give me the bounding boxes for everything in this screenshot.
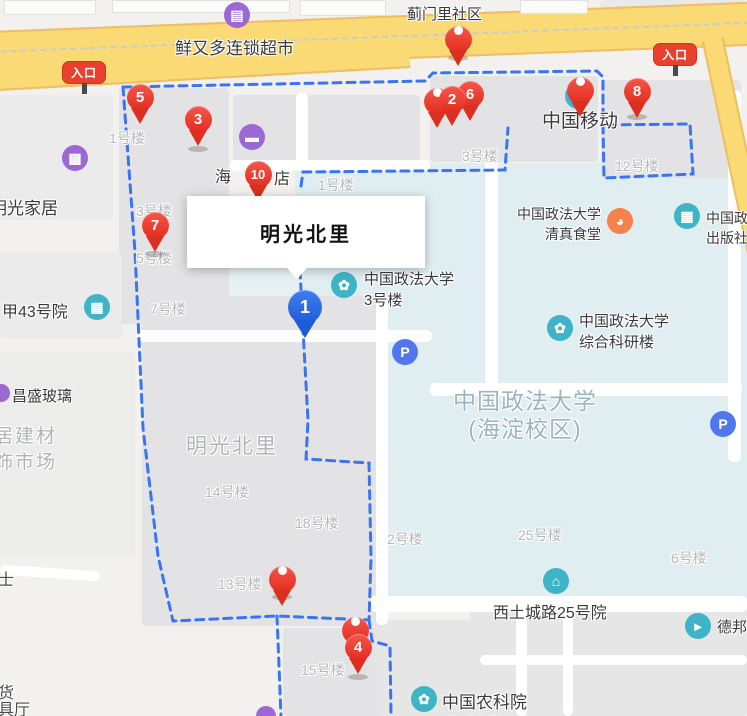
- supermarket-icon[interactable]: ▤: [224, 2, 250, 28]
- roof-block: [300, 0, 386, 16]
- roof-block: [4, 0, 96, 15]
- sprout-glyph: ✿: [418, 692, 430, 706]
- map-pin-1-selected[interactable]: 1: [288, 290, 322, 338]
- building-label-25: 25号楼: [518, 525, 562, 545]
- pin-tail: [131, 108, 149, 124]
- pin-number: 4: [345, 634, 372, 661]
- building-label-18: 18号楼: [295, 513, 339, 533]
- p-glyph: P: [400, 345, 409, 359]
- pin-head: [269, 566, 296, 593]
- label-uni-b3[interactable]: 中国政法大学 3号楼: [364, 268, 454, 310]
- building-glyph: ▦: [90, 300, 103, 314]
- label-jia43[interactable]: 甲43号院: [2, 298, 68, 322]
- label-xitucheng[interactable]: 西土城路25号院: [493, 599, 607, 623]
- building-glyph: ▦: [680, 209, 693, 223]
- cut-poi-icon: [256, 706, 276, 716]
- label-supermarket[interactable]: 鲜又多连锁超市: [175, 34, 294, 59]
- label-changsheng[interactable]: 昌盛玻璃: [12, 385, 72, 406]
- map-pin-8[interactable]: 8: [623, 78, 651, 118]
- bag-glyph: ▩: [68, 151, 81, 165]
- parking-icon-1[interactable]: P: [392, 339, 418, 365]
- roof-block: [520, 0, 588, 14]
- pin-number: 5: [127, 84, 154, 111]
- entrance-sign-east: 入口: [653, 43, 697, 66]
- label-debang[interactable]: 德邦物流: [717, 616, 747, 637]
- uni-b3-line2: 3号楼: [364, 289, 454, 310]
- parking-icon-2[interactable]: P: [710, 411, 736, 437]
- pin-number: 2: [439, 86, 466, 113]
- campus-label-line2: (海淀校区): [453, 416, 597, 444]
- label-press[interactable]: 中国政法大学 出版社: [706, 208, 747, 248]
- pin-tail: [189, 130, 207, 146]
- canteen-icon[interactable]: ◕: [607, 208, 633, 234]
- bowl-glyph: ◕: [616, 214, 624, 228]
- map-canvas[interactable]: 明光北里 中国政法大学 (海淀校区) 1号楼 3号楼 5号楼 7号楼 1号楼 3…: [0, 0, 747, 716]
- canteen-line1: 中国政法大学: [497, 204, 601, 224]
- hotel-icon[interactable]: ▬: [239, 124, 265, 150]
- uni-b3-icon[interactable]: ✿: [331, 272, 357, 298]
- pin-tail: [349, 658, 367, 674]
- building-label-3b: 3号楼: [462, 146, 498, 166]
- infobox-mingguangbeili[interactable]: 明光北里: [187, 196, 425, 268]
- keyan-line1: 中国政法大学: [579, 310, 669, 331]
- sprout-glyph: ✿: [554, 321, 566, 335]
- entrance-sign-west: 入口: [62, 61, 106, 84]
- label-frag-shi: 士: [0, 566, 14, 590]
- label-hotel-left[interactable]: 海: [215, 163, 231, 187]
- debang-icon[interactable]: ▸: [685, 613, 711, 639]
- house-glyph: ⌂: [552, 574, 560, 588]
- road: [485, 160, 498, 390]
- building-label-6: 6号楼: [671, 548, 707, 568]
- building-label-7: 7号楼: [150, 299, 186, 319]
- building-label-1a: 1号楼: [109, 128, 145, 148]
- map-pin-plain-mobile[interactable]: [566, 68, 594, 117]
- map-pin-plain-road[interactable]: [444, 17, 472, 66]
- pin-head: [445, 26, 472, 53]
- label-frag-juting: 具厅: [0, 696, 30, 716]
- pin-shadow: [348, 674, 368, 680]
- map-pin-5[interactable]: 5: [126, 84, 154, 124]
- press-icon[interactable]: ▦: [674, 203, 700, 229]
- pin-tail: [449, 50, 467, 66]
- map-pin-3[interactable]: 3: [184, 106, 212, 146]
- pin-number: 7: [142, 212, 169, 239]
- pin-number: 3: [185, 106, 212, 133]
- p-glyph: P: [718, 417, 727, 431]
- pin-number: 10: [245, 161, 272, 188]
- map-pin-plain-13[interactable]: [268, 557, 296, 606]
- pin-head: [567, 77, 594, 104]
- map-pin-2[interactable]: 2: [438, 86, 466, 126]
- label-canteen[interactable]: 中国政法大学 清真食堂: [497, 204, 601, 244]
- press-line1: 中国政法大学: [706, 208, 747, 228]
- building-label-12: 12号楼: [615, 156, 659, 176]
- map-pin-4[interactable]: 4: [344, 634, 372, 674]
- xitucheng-icon[interactable]: ⌂: [543, 568, 569, 594]
- label-home[interactable]: 明光家居: [0, 194, 58, 219]
- roof-block: [112, 0, 290, 13]
- map-pin-10[interactable]: 10: [244, 161, 272, 201]
- pin-tail: [273, 590, 291, 606]
- pin-tail: [571, 101, 589, 117]
- press-line2: 出版社: [706, 228, 747, 248]
- keyan-line2: 综合科研楼: [579, 331, 669, 352]
- building-label-1b: 1号楼: [318, 175, 354, 195]
- building-label-2: 2号楼: [387, 529, 423, 549]
- infobox-title: 明光北里: [260, 218, 352, 247]
- pin-number: 1: [288, 290, 322, 324]
- yard43-icon[interactable]: ▦: [84, 294, 110, 320]
- nongkeyuan-icon[interactable]: ✿: [411, 686, 437, 712]
- building-label-15: 15号楼: [301, 660, 345, 680]
- pin-tail: [443, 110, 461, 126]
- pin-tail: [628, 102, 646, 118]
- road: [0, 565, 100, 582]
- area-label-campus: 中国政法大学 (海淀校区): [453, 388, 597, 443]
- sprout-glyph: ✿: [338, 278, 350, 292]
- canteen-line2: 清真食堂: [497, 224, 601, 244]
- label-keyan[interactable]: 中国政法大学 综合科研楼: [579, 310, 669, 352]
- nongkeyuan-line1: 中国农科院: [442, 688, 532, 713]
- bed-glyph: ▬: [245, 130, 259, 144]
- building-label-13: 13号楼: [218, 574, 262, 594]
- campus-label-line1: 中国政法大学: [453, 388, 597, 416]
- label-nongkeyuan[interactable]: 中国农科院 附属小学分校: [442, 688, 532, 716]
- uni-b3-line1: 中国政法大学: [364, 268, 454, 289]
- pin-tail: [294, 320, 316, 338]
- road: [376, 300, 388, 625]
- basket-glyph: ▤: [230, 8, 243, 22]
- building-label-14: 14号楼: [205, 482, 249, 502]
- map-pin-7[interactable]: 7: [141, 212, 169, 252]
- label-market-frag: 居建材饰市场: [0, 424, 57, 475]
- pin-tail: [146, 236, 164, 252]
- homeware-icon[interactable]: ▩: [62, 145, 88, 171]
- label-hotel-right[interactable]: 店: [274, 165, 290, 189]
- area-label-mingguang: 明光北里: [186, 430, 278, 460]
- road: [480, 655, 747, 665]
- pin-shadow: [188, 146, 208, 152]
- truck-glyph: ▸: [694, 619, 701, 633]
- keyan-icon[interactable]: ✿: [547, 315, 573, 341]
- pin-number: 8: [624, 78, 651, 105]
